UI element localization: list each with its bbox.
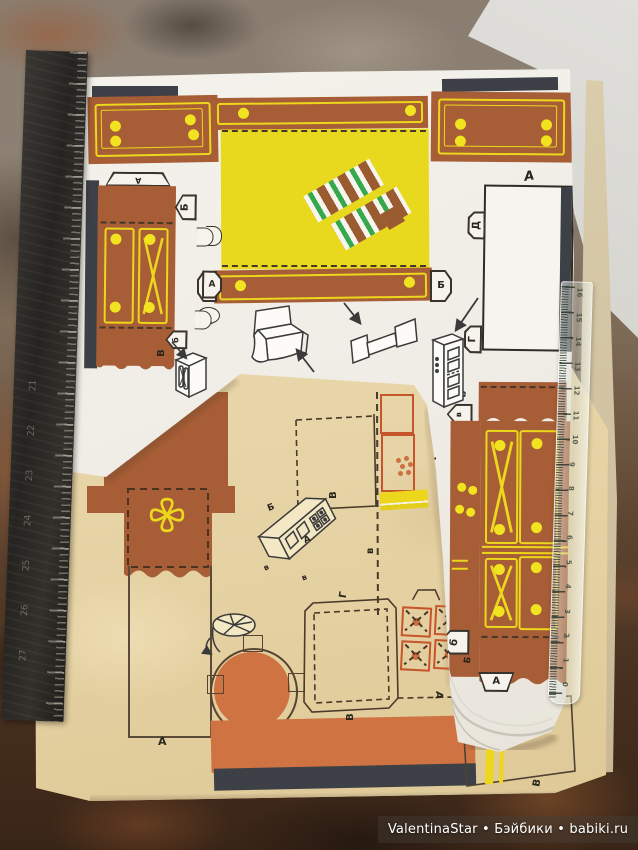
ruler-number: 3 xyxy=(563,608,571,613)
ruler-number: 7 xyxy=(566,510,574,515)
watermark-text: ValentinaStar • Бэйбики • babiki.ru xyxy=(378,816,638,843)
photo-papercraft-scene: А В в Г В А А В Б А в в xyxy=(0,0,638,850)
ruler-number: 27 xyxy=(18,649,28,661)
ruler-number: 26 xyxy=(20,604,30,616)
ruler-number: 25 xyxy=(22,559,32,571)
ruler-number: 22 xyxy=(27,425,37,437)
part-label: А xyxy=(158,736,167,747)
ruler-number: 12 xyxy=(572,386,580,396)
ruler-number: 2 xyxy=(562,633,570,638)
ruler-number: 23 xyxy=(25,470,35,482)
ruler-number: 16 xyxy=(575,288,583,298)
ruler-number: 5 xyxy=(565,559,573,564)
ruler-number: 4 xyxy=(564,584,572,589)
ruler-number: 15 xyxy=(575,312,583,322)
ruler-number: 21 xyxy=(28,380,38,392)
ruler-number: 6 xyxy=(565,535,573,540)
ruler-number: 11 xyxy=(572,410,580,420)
ruler-number: 10 xyxy=(571,435,579,445)
ruler-number: 9 xyxy=(568,461,576,466)
ruler-number: 1 xyxy=(561,657,569,662)
ruler-number: 13 xyxy=(573,361,581,371)
part-label: В xyxy=(346,713,356,721)
part-label: А xyxy=(433,691,444,700)
ruler-number: 14 xyxy=(574,337,582,347)
part-label: В xyxy=(329,491,339,499)
ruler-number: 8 xyxy=(567,486,575,491)
ruler-number: 0 xyxy=(561,682,569,687)
ruler-number: 24 xyxy=(23,515,33,527)
part-label: В xyxy=(532,778,543,787)
part-label: в xyxy=(366,548,376,554)
